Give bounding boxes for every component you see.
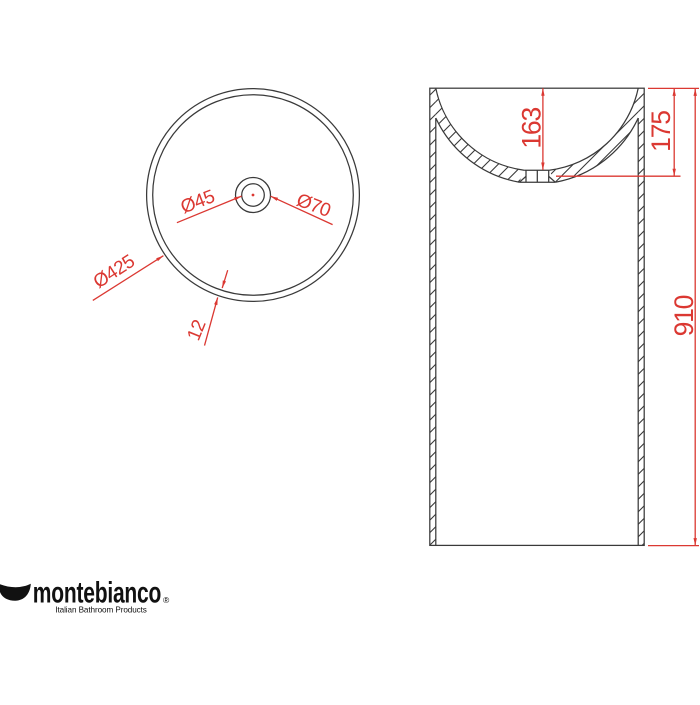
svg-text:163: 163 bbox=[517, 108, 547, 149]
svg-text:Italian Bathroom Products: Italian Bathroom Products bbox=[55, 604, 146, 614]
svg-text:910: 910 bbox=[669, 295, 699, 336]
svg-text:®: ® bbox=[163, 595, 170, 605]
svg-text:175: 175 bbox=[646, 111, 676, 152]
